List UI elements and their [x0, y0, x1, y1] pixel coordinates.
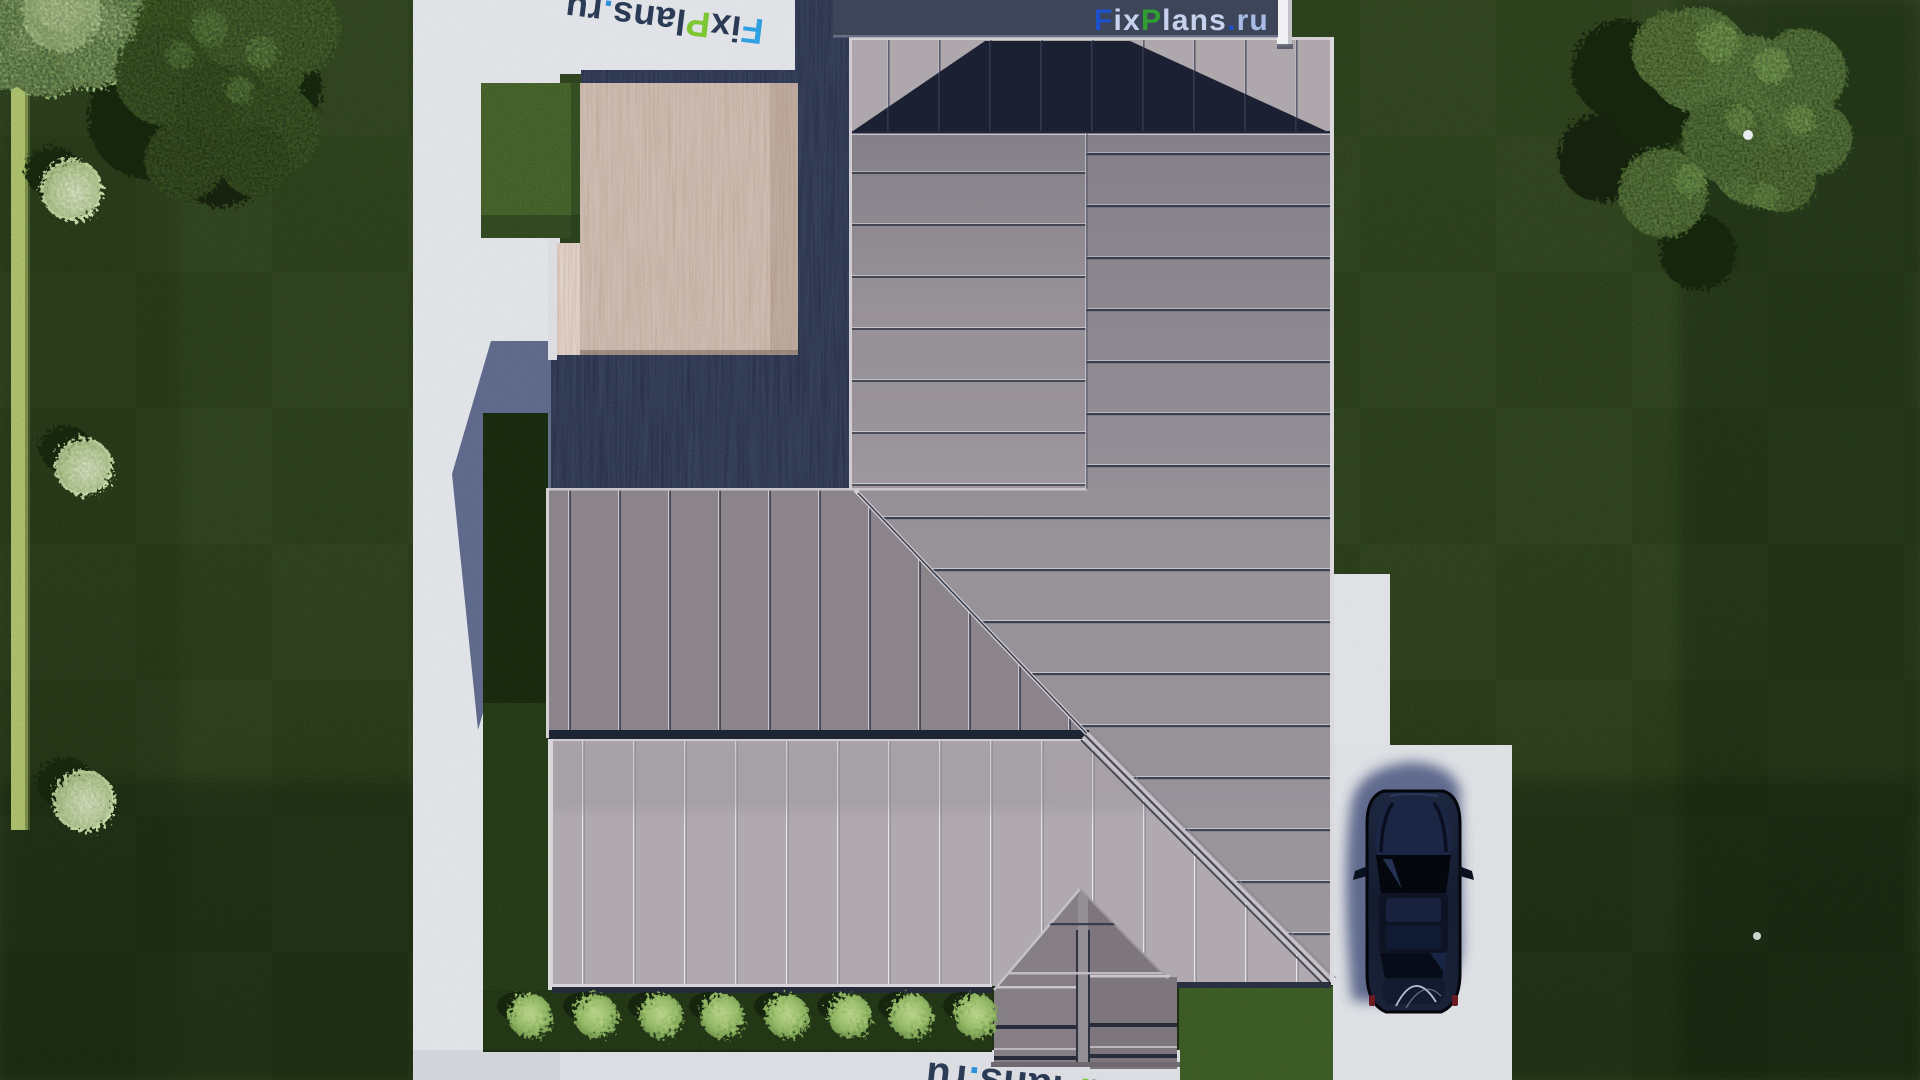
svg-text:FixPlans.ru: FixPlans.ru [1094, 4, 1269, 37]
